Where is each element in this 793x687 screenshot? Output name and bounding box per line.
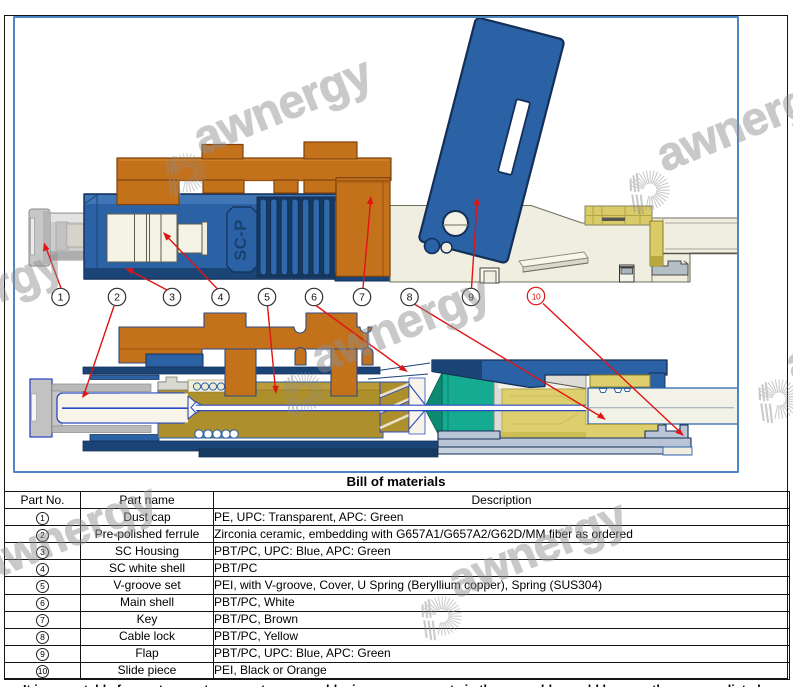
svg-text:5: 5	[264, 292, 270, 304]
svg-text:4: 4	[218, 292, 224, 304]
svg-text:3: 3	[169, 292, 175, 304]
svg-text:1: 1	[58, 292, 64, 304]
svg-text:2: 2	[114, 292, 120, 304]
svg-text:SC-P: SC-P	[232, 219, 250, 260]
svg-text:6: 6	[311, 292, 317, 304]
svg-text:10: 10	[532, 292, 541, 302]
svg-text:7: 7	[359, 292, 365, 304]
